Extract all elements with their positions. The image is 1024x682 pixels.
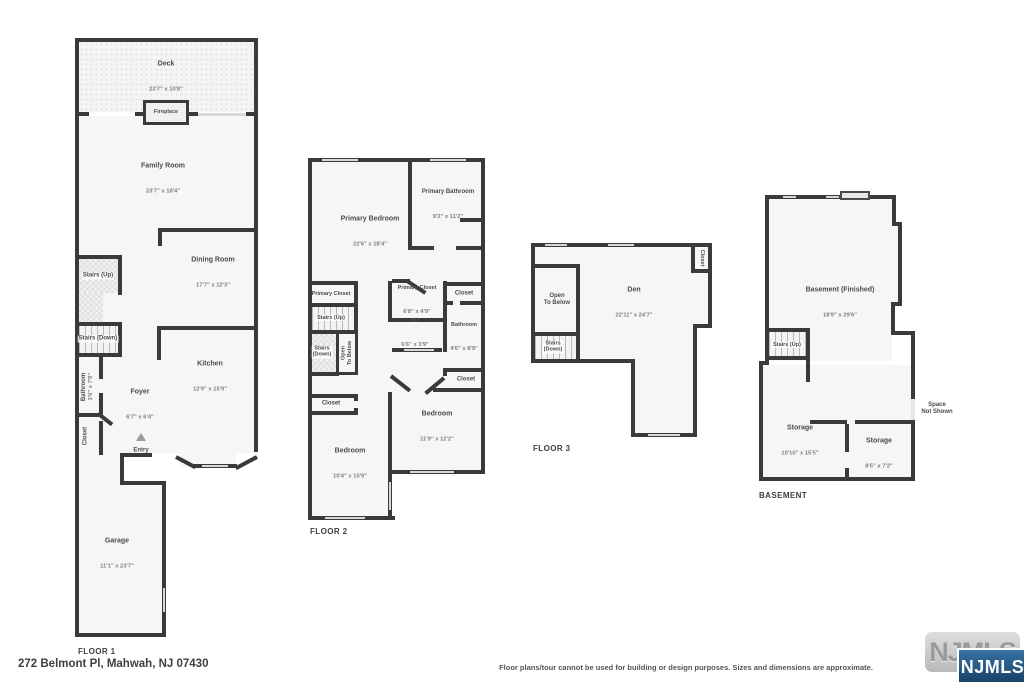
wall	[481, 158, 485, 474]
njmls-logo-text: NJMLS	[961, 657, 1024, 678]
room-label-closet-left: Closet	[322, 383, 340, 426]
room-label-primary-bedroom: Primary Bedroom 22'6" x 18'4"	[341, 197, 400, 266]
window	[322, 159, 358, 161]
wall	[845, 424, 849, 452]
room-name: Entry	[133, 448, 148, 455]
room-dims: 18'9" x 29'6"	[806, 312, 875, 319]
window	[325, 517, 365, 519]
room-name: Primary Bathroom	[422, 189, 474, 196]
address: 272 Belmont Pl, Mahwah, NJ 07430	[18, 658, 208, 670]
floorplan-canvas: Fireplace Deck 23'7" x 10'8" Family Room…	[0, 0, 1024, 682]
room-label-deck: Deck 23'7" x 10'8"	[149, 42, 183, 111]
floor1-corridor-fill	[79, 453, 120, 485]
room-name: Closet	[322, 401, 340, 408]
room-label-basement: Basement (Finished) 18'9" x 29'6"	[806, 268, 875, 337]
window	[840, 191, 870, 200]
room-label-closet: Closet	[83, 427, 90, 445]
wall	[576, 336, 580, 361]
wall	[75, 633, 166, 637]
room-name: Bathroom	[81, 373, 88, 401]
wall	[845, 468, 849, 481]
room-name: Deck	[149, 60, 183, 68]
window	[545, 244, 567, 246]
wall	[806, 360, 810, 382]
wall	[157, 326, 258, 330]
room-label-garage: Garage 11'1" x 23'7"	[100, 519, 134, 588]
wall	[443, 281, 447, 352]
window	[826, 196, 839, 198]
njmls-logo: NJMLS	[957, 648, 1024, 682]
room-dims: 23'7" x 10'8"	[149, 86, 183, 93]
room-name: Den	[616, 286, 653, 294]
label-space-not-shown: Space Not Shown	[921, 384, 952, 434]
window	[198, 113, 246, 116]
room-name: Bedroom	[420, 410, 454, 418]
room-label-open-to-below: Open To Below	[544, 275, 570, 325]
wall	[354, 408, 358, 415]
room-dims: 6'7" x 6'4"	[126, 414, 154, 421]
room-name: Bedroom	[333, 447, 367, 455]
window	[163, 588, 165, 612]
room-dims: 11'1" x 23'7"	[100, 563, 134, 570]
room-name: W/d	[401, 318, 429, 324]
wall	[99, 421, 103, 455]
wall	[336, 372, 358, 375]
room-dims: 17'7" x 12'3"	[191, 282, 235, 289]
room-name: Storage	[781, 424, 818, 432]
room-dims: 23'7" x 18'4"	[141, 188, 185, 195]
wall	[157, 330, 161, 360]
room-label-den: Den 22'11" x 24'7"	[616, 268, 653, 337]
room-name: Dining Room	[191, 256, 235, 264]
wall	[898, 222, 902, 306]
room-name: Space Not Shown	[921, 402, 952, 416]
room-label-storage-right: Storage 8'5" x 7'2"	[865, 419, 893, 488]
room-name: Open To Below	[341, 341, 354, 365]
room-dims: 11'9" x 12'2"	[420, 436, 454, 443]
room-label-bedroom-right: Bedroom 11'9" x 12'2"	[420, 392, 454, 461]
room-dims: 3'6" x 7'8"	[88, 373, 95, 401]
wall	[254, 38, 258, 452]
room-label-family-room: Family Room 23'7" x 18'4"	[141, 144, 185, 213]
window	[783, 196, 796, 198]
floor3-room-fill-c	[635, 359, 693, 433]
room-dims: 9'2" x 11'2"	[422, 214, 474, 221]
room-dims: 22'6" x 18'4"	[341, 241, 400, 248]
wall	[691, 243, 695, 271]
window	[410, 471, 454, 473]
room-dims: 6'6" x 3'9"	[401, 343, 429, 350]
room-name: Foyer	[126, 388, 154, 396]
basement-label: BASEMENT	[759, 491, 807, 500]
room-label-stairs-down: Stairs (Down)	[78, 318, 119, 361]
room-dims: 4'6" x 8'9"	[450, 347, 478, 354]
room-label-stairs-up: Stairs (Up)	[772, 324, 802, 366]
room-name: Storage	[865, 437, 893, 445]
wall	[246, 112, 258, 116]
wall	[118, 255, 122, 295]
room-label-stairs-down: Stairs (Down)	[543, 323, 564, 372]
wall	[576, 264, 580, 336]
room-label-stairs-up: Stairs (Up)	[82, 255, 114, 298]
wall	[354, 394, 358, 401]
wall	[456, 246, 485, 250]
wall	[531, 243, 535, 363]
room-label-primary-bathroom: Primary Bathroom 9'2" x 11'2"	[422, 171, 474, 239]
room-name: Basement (Finished)	[806, 286, 875, 294]
room-name: Stairs (Down)	[312, 346, 333, 359]
room-label-bedroom-left: Bedroom 10'4" x 15'9"	[333, 429, 367, 498]
room-name: Stairs (Down)	[543, 341, 564, 354]
wall	[693, 324, 697, 437]
window	[430, 159, 466, 161]
room-dims: 22'11" x 24'7"	[616, 312, 653, 319]
room-name: Stairs (Down)	[78, 336, 119, 343]
room-label-bathroom: Bathroom 3'6" x 7'8"	[81, 373, 95, 401]
wall	[158, 228, 258, 232]
room-label-closet-mid: Closet	[457, 359, 475, 402]
wall	[765, 195, 769, 365]
room-name: Closet	[457, 377, 475, 384]
room-name: Open To Below	[544, 293, 570, 307]
wall	[75, 112, 89, 116]
room-name: Closet	[83, 427, 90, 445]
room-name: Stairs (Up)	[316, 315, 346, 321]
room-name: Stairs (Up)	[772, 342, 802, 348]
wall	[158, 232, 162, 246]
floor3-label: FLOOR 3	[533, 444, 570, 453]
room-name: Primary Closet	[398, 285, 437, 291]
room-name: Kitchen	[193, 360, 227, 368]
window	[648, 434, 680, 436]
room-dims: 10'4" x 15'9"	[333, 473, 367, 480]
wall	[355, 332, 358, 375]
wall	[911, 331, 915, 399]
wall	[118, 322, 122, 357]
room-label-wd: W/d 6'6" x 3'9"	[401, 300, 429, 368]
wall	[533, 264, 580, 268]
room-label-stairs-down: Stairs (Down)	[312, 328, 333, 377]
wall	[388, 281, 392, 322]
room-label-dining-room: Dining Room 17'7" x 12'3"	[191, 238, 235, 307]
wall	[759, 361, 763, 481]
room-name: Family Room	[141, 162, 185, 170]
room-dims: 10'10" x 15'5"	[781, 450, 818, 457]
doorway-opening	[911, 399, 915, 421]
wall	[631, 359, 635, 437]
wall	[162, 481, 166, 637]
floor1-label: FLOOR 1	[78, 647, 115, 656]
wall	[412, 246, 434, 250]
floor2-label: FLOOR 2	[310, 527, 347, 536]
room-name: Bathroom	[450, 322, 478, 328]
room-name: Garage	[100, 537, 134, 545]
room-name: Closet	[699, 250, 705, 267]
room-label-closet: Closet	[699, 232, 705, 285]
window	[608, 244, 634, 246]
wall	[120, 481, 166, 485]
room-label-kitchen: Kitchen 12'9" x 15'9"	[193, 342, 227, 411]
room-label-storage-left: Storage 10'10" x 15'5"	[781, 406, 818, 475]
wall	[408, 162, 412, 250]
room-label-entry: Entry	[133, 430, 148, 473]
window	[389, 482, 391, 510]
wall	[708, 243, 712, 328]
wall	[235, 455, 258, 470]
window	[202, 465, 228, 467]
room-name: Primary Bedroom	[341, 215, 400, 223]
room-label-open-to-below: Open To Below	[341, 341, 354, 365]
wall	[911, 421, 915, 481]
room-dims: 12'9" x 15'9"	[193, 386, 227, 393]
room-name: Closet	[455, 291, 473, 298]
disclaimer: Floor plans/tour cannot be used for buil…	[350, 663, 1022, 672]
room-dims: 8'5" x 7'2"	[865, 463, 893, 470]
room-name: Stairs (Up)	[82, 273, 114, 280]
